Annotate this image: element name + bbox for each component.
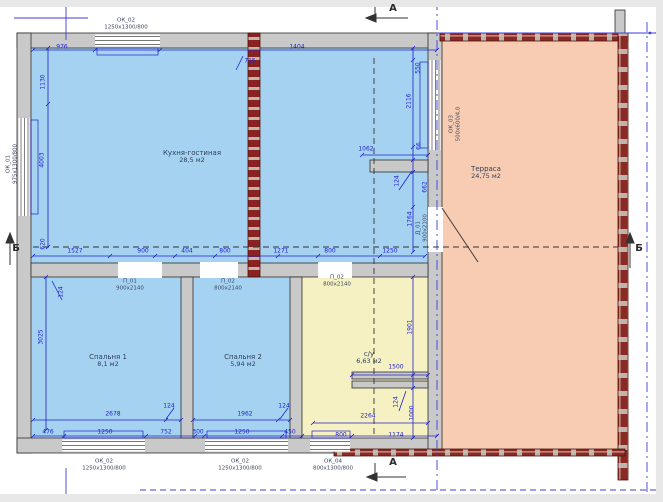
sheet-edge-right [656,0,663,502]
bath-partial-wall-a [352,372,428,379]
terrace-bottom-wall [334,449,625,456]
window-right [430,60,441,150]
kitchen-living-fill [31,48,428,263]
window-bottom-1 [62,440,145,452]
window-left [19,118,30,216]
bedroom1-fill [31,277,181,438]
window-top [95,35,160,47]
bedroom2-fill [193,277,290,438]
floor-plan-sheet: 9761404715113040035502116106266124662176… [0,0,663,502]
window-bottom-2 [205,440,288,452]
left-wall [17,33,31,453]
terrace-corner-post [615,10,625,33]
terrace-right-wall [618,33,628,480]
window-bottom-3 [310,440,350,452]
bathroom-fill [302,277,428,438]
sheet-edge-bottom [0,494,663,502]
interior-wall-bed2-bath [290,277,302,438]
room-fills [31,41,618,449]
bath-partial-wall-b [352,381,428,388]
kitchen-partial-wall [370,160,428,172]
terrace-top-wall [440,33,628,41]
sheet-edge-top [0,0,663,7]
chimney-column [248,33,260,277]
top-wall [17,33,440,48]
plan-linework [0,0,663,502]
interior-wall-bed1-bed2 [181,277,193,438]
